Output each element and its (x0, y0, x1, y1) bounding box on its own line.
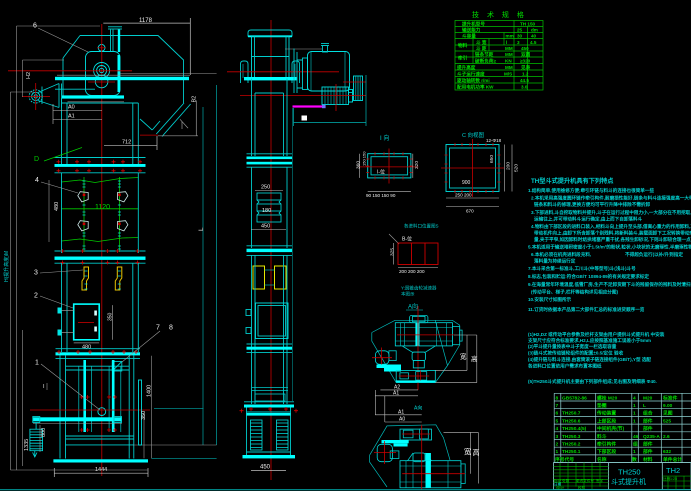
svg-text:斗式提升机: 斗式提升机 (611, 477, 646, 486)
svg-text:TH250.7: TH250.7 (562, 411, 581, 417)
svg-text:2.本机采用高强度圆环链作牵引构件,耐磨损性能好,链条与料斗: 2.本机采用高强度圆环链作牵引构件,耐磨损性能好,链条与料斗连接强度高一大带动并… (531, 195, 691, 202)
svg-text:1: 1 (633, 449, 636, 455)
svg-text:3: 3 (34, 270, 38, 277)
svg-text:6: 6 (33, 23, 37, 30)
svg-text:校核: 校核 (578, 485, 586, 490)
svg-text:TH 150: TH 150 (520, 21, 536, 26)
svg-text:320: 320 (414, 161, 420, 169)
svg-text:250 200: 250 200 (455, 193, 472, 198)
svg-text:技 术 规 格: 技 术 规 格 (472, 10, 527, 19)
svg-text:运输往上,并可带动料斗运行确定,由上而下自卸落料斗: 运输往上,并可带动料斗运行确定,由上而下自卸落料斗 (534, 216, 643, 223)
svg-text:1:25: 1:25 (670, 477, 677, 481)
svg-text:各进料口位置图S: 各进料口位置图S (404, 223, 439, 230)
svg-text:670: 670 (466, 209, 474, 214)
svg-text:1120: 1120 (95, 204, 110, 211)
svg-text:驱动轴转数 r/mi: 驱动轴转数 r/mi (457, 77, 490, 84)
svg-text:1335: 1335 (24, 439, 30, 451)
svg-text:物料: 物料 (458, 42, 468, 49)
svg-text:(1)H2,DZ 或传动平台参数及栏杆支架由用户提供斗式提升: (1)H2,DZ 或传动平台参数及栏杆支架由用户提供斗式提升机 中安装 (528, 331, 665, 338)
svg-text:450: 450 (260, 465, 271, 471)
svg-text:1.2: 1.2 (522, 72, 529, 77)
svg-text:325: 325 (390, 248, 396, 256)
svg-text:链条节距: 链条节距 (474, 51, 494, 58)
svg-text:4.物料由下部区段的进料口装入,经料斗向上提升至头部,借离心: 4.物料由下部区段的进料口装入,经料斗向上提升至头部,借离心重力的作用卸料,工况… (531, 223, 691, 230)
svg-text:5.本机适用于输送堆积密度小于1.5t/m³的粉状,粒状,小: 5.本机适用于输送堆积密度小于1.5t/m³的粉状,粒状,小块状的无磨琢性,半磨… (528, 244, 691, 251)
svg-text:525: 525 (663, 418, 671, 424)
svg-text:M/S: M/S (504, 72, 512, 77)
svg-text:下部区段: 下部区段 (597, 448, 616, 455)
svg-text:(2)平斗提升量按表中斗子宽度一栏选取容量: (2)平斗提升量按表中斗子宽度一栏选取容量 (528, 343, 617, 350)
svg-text:MM: MM (505, 52, 513, 57)
svg-text:(4)提升链与料斗连接,由套筒滚子链连接组件(GB/T),Y: (4)提升链与料斗连接,由套筒滚子链连接组件(GB/T),Y型 选配 (528, 356, 651, 363)
svg-text:800: 800 (41, 428, 47, 437)
svg-text:组合: 组合 (643, 410, 653, 417)
svg-text:1178: 1178 (139, 18, 153, 24)
svg-text:5: 5 (556, 418, 559, 424)
svg-text:料斗: 料斗 (597, 433, 607, 440)
svg-text:牵引: 牵引 (458, 55, 468, 62)
svg-text:落料量为持续运行定: 落料量为持续运行定 (534, 258, 576, 265)
svg-text:2: 2 (34, 293, 38, 300)
svg-text:垫圈: 垫圈 (597, 402, 607, 409)
svg-text:3: 3 (556, 434, 559, 440)
svg-text:A2: A2 (394, 384, 400, 390)
svg-text:(5)TH250斗式提升机主要由下列部件组成;见右图及明细表: (5)TH250斗式提升机主要由下列部件组成;见右图及明细表 Φ40. (528, 378, 657, 385)
svg-text:MM: MM (505, 46, 513, 51)
svg-text:712: 712 (122, 140, 131, 146)
svg-text:480: 480 (82, 345, 91, 351)
svg-text:斗子运行速度: 斗子运行速度 (457, 71, 485, 78)
svg-text:2: 2 (556, 442, 559, 448)
svg-text:4: 4 (633, 395, 636, 401)
svg-text:6: 6 (556, 411, 559, 417)
svg-text:牵引构件: 牵引构件 (597, 441, 616, 448)
svg-text:450: 450 (261, 224, 270, 230)
svg-text:30: 30 (517, 33, 523, 38)
svg-text:MM: MM (505, 65, 513, 70)
svg-text:TH250.3: TH250.3 (562, 434, 581, 440)
svg-text:上部区段: 上部区段 (597, 417, 616, 424)
svg-text:(传动平台、梯子,栏杆等结构详见相应分图): (传动平台、梯子,栏杆等结构详见相应分图) (531, 289, 618, 296)
svg-text:480: 480 (54, 202, 60, 211)
svg-text:12-Φ18: 12-Φ18 (486, 138, 502, 143)
svg-text:3.0: 3.0 (521, 85, 528, 90)
svg-text:GB5782-86: GB5782-86 (562, 395, 587, 401)
svg-text:名称: 名称 (597, 456, 607, 463)
svg-text:带动机件向上,由卸下所含卸落个别残料,将新料装斗,装载面卸下: 带动机件向上,由卸下所含卸落个别残料,将新料装斗,装载面卸下工况转换带动升运 (534, 230, 691, 237)
svg-text:TH250.6: TH250.6 (562, 418, 581, 424)
svg-text:斗 宽: 斗 宽 (476, 39, 487, 46)
svg-text:A1: A1 (68, 114, 75, 120)
svg-text:数: 数 (632, 456, 637, 463)
svg-text:链条和料斗的修理,更换方便均可平行升降中排除不需折卸: 链条和料斗的修理,更换方便均可平行升降中排除不需折卸 (533, 201, 651, 208)
svg-text:A0: A0 (399, 417, 405, 423)
svg-text:10.安装尺寸如图所示: 10.安装尺寸如图所示 (528, 296, 572, 303)
svg-text:A向: A向 (408, 303, 418, 311)
svg-text:1: 1 (633, 411, 636, 417)
svg-text:11.订货时依据本产品第二大部件汇总的标准进货顺序一览: 11.订货时依据本产品第二大部件汇总的标准进货顺序一览 (528, 306, 645, 313)
svg-text:4: 4 (556, 426, 559, 432)
svg-text:日期: 日期 (554, 481, 562, 486)
svg-text:A0: A0 (68, 105, 75, 111)
svg-text:7: 7 (556, 403, 559, 409)
svg-text:B2: B2 (192, 96, 198, 103)
svg-text:8.标志,包装和贮运:符合GB/T 10894-89的有关规: 8.标志,包装和贮运:符合GB/T 10894-89的有关规定要求标定 (528, 273, 649, 280)
svg-text:dm: dm (531, 27, 538, 32)
svg-text:高: 高 (473, 448, 480, 457)
svg-text:9.00: 9.00 (663, 403, 673, 409)
svg-text:8: 8 (169, 325, 173, 332)
svg-text:4.5: 4.5 (530, 40, 537, 45)
svg-text:Q235-A: Q235-A (643, 434, 660, 440)
svg-text:I-位: I-位 (377, 169, 385, 176)
svg-text:不得超负运行(以补/升到指定: 不得超负运行(以补/升到指定 (625, 251, 683, 258)
svg-text:TH250.2: TH250.2 (562, 442, 581, 448)
svg-text:螺栓 M20: 螺栓 M20 (597, 394, 618, 401)
svg-text:部件: 部件 (643, 441, 653, 448)
svg-text:632: 632 (663, 449, 671, 455)
svg-text:KN: KN (505, 59, 512, 64)
svg-text:A1: A1 (393, 391, 399, 397)
svg-text:更改文件号: 更改文件号 (576, 478, 594, 483)
svg-text:1: 1 (556, 449, 559, 455)
svg-text:B-位: B-位 (402, 236, 412, 243)
svg-text:H2: H2 (26, 72, 32, 79)
svg-text:mm: mm (506, 33, 514, 38)
svg-text:9.在海量常年环境温度,低雪厂房,生产不足卸货期下斗的残留保: 9.在海量常年环境温度,低雪厂房,生产不足卸货期下斗的残留保存的残料及时清扫干净… (528, 281, 691, 288)
svg-text:1: 1 (633, 403, 636, 409)
svg-text:(3)链斗式按传动链轮组件的配置±0.5/定位 验收: (3)链斗式按传动链轮组件的配置±0.5/定位 验收 (528, 350, 624, 357)
svg-text:见表: 见表 (520, 64, 531, 71)
svg-text:配用电机功率 KW: 配用电机功率 KW (457, 84, 494, 91)
svg-text:≥320: ≥320 (520, 59, 531, 64)
svg-text:传动装置: 传动装置 (596, 410, 616, 417)
svg-text:4: 4 (35, 177, 39, 184)
svg-text:90 150 150 90: 90 150 150 90 (366, 193, 396, 198)
svg-text:支架尺寸应符合标准要求,H2,L应按照基准施工误差小于5mm: 支架尺寸应符合标准要求,H2,L应按照基准施工误差小于5mm (528, 337, 651, 344)
svg-text:1.结构简单,使用维修方便;牵引环链与料斗的连接也很简单一些: 1.结构简单,使用维修方便;牵引环链与料斗的连接也很简单一些 (528, 187, 654, 194)
svg-text:宽: 宽 (464, 447, 471, 456)
svg-text:Y:圆锥齿轮减速器: Y:圆锥齿轮减速器 (401, 285, 437, 292)
svg-text:TH型斗式提升机具有下列特点: TH型斗式提升机具有下列特点 (531, 177, 614, 185)
svg-text:D: D (34, 156, 39, 163)
svg-text:高: 高 (471, 354, 478, 363)
svg-text:46: 46 (633, 434, 639, 440)
svg-text:宽: 宽 (460, 352, 467, 361)
svg-text:C 向视图: C 向视图 (462, 131, 485, 139)
svg-text:7.本斗采合第一标准斗,工川斗(中等型号)斗(浅斗)斗号: 7.本斗采合第一标准斗,工川斗(中等型号)斗(浅斗)斗号 (528, 265, 636, 272)
svg-text:斗容量: 斗容量 (462, 32, 476, 39)
svg-text:TH250.1: TH250.1 (562, 449, 581, 455)
svg-text:A1: A1 (398, 409, 404, 415)
svg-text:双圆: 双圆 (521, 51, 531, 58)
svg-text:I 向: I 向 (380, 134, 389, 142)
svg-text:序号代号: 序号代号 (555, 456, 574, 463)
svg-text:组: 组 (633, 441, 638, 448)
svg-text:部件: 部件 (643, 448, 653, 455)
svg-text:44.5: 44.5 (520, 78, 529, 83)
svg-text:8: 8 (556, 395, 559, 401)
svg-text:900: 900 (462, 180, 471, 186)
svg-text:提升机型号: 提升机型号 (462, 20, 485, 27)
svg-text:l: l (506, 40, 507, 45)
svg-text:520: 520 (514, 164, 520, 172)
svg-text:1400: 1400 (147, 385, 153, 397)
svg-text:200 200 200: 200 200 200 (399, 269, 425, 274)
svg-text:A向: A向 (414, 405, 422, 412)
svg-text:150 150: 150 150 (362, 151, 367, 166)
svg-text:量,夹于平窄,如因卸料时结拱堵塞严重干扰,各残生卸砂况,下则: 量,夹于平窄,如因卸料时结拱堵塞严重干扰,各残生卸砂况,下则斗卸较合理一点 (534, 236, 691, 243)
svg-text:350: 350 (141, 411, 147, 420)
svg-text:各进料口位置依用户需求布置本图纸: 各进料口位置依用户需求布置本图纸 (527, 363, 602, 370)
svg-text:部件: 部件 (643, 425, 653, 432)
svg-text:部件: 部件 (643, 417, 653, 424)
svg-text:见图: 见图 (663, 410, 673, 417)
svg-text:L: L (198, 227, 205, 231)
svg-text:M20: M20 (643, 395, 653, 401)
svg-text:3: 3 (517, 40, 520, 45)
svg-text:650: 650 (489, 155, 495, 163)
svg-text:7: 7 (156, 325, 160, 332)
svg-text:TH2: TH2 (666, 466, 680, 475)
svg-text:200: 200 (506, 162, 512, 170)
svg-text:25: 25 (517, 27, 523, 32)
svg-text:40: 40 (531, 33, 537, 38)
svg-text:250: 250 (261, 185, 270, 191)
svg-text:L: L (643, 403, 646, 409)
svg-text:标准件: 标准件 (662, 394, 678, 401)
svg-text:H(提升高度)M: H(提升高度)M (3, 251, 10, 282)
svg-text:提升高度: 提升高度 (457, 64, 476, 71)
svg-text:TH250: TH250 (618, 468, 641, 477)
svg-text:6.本机必须在机壳进料段充料,: 6.本机必须在机壳进料段充料, (531, 251, 591, 258)
svg-text:材料: 材料 (642, 456, 653, 463)
svg-text:180: 180 (262, 208, 271, 214)
svg-text:TH250.4(5): TH250.4(5) (562, 426, 587, 432)
svg-text:1: 1 (633, 418, 636, 424)
svg-text:斗 距: 斗 距 (476, 45, 487, 52)
svg-text:2.6: 2.6 (663, 434, 670, 440)
svg-text:中间机壳(节): 中间机壳(节) (597, 425, 625, 432)
svg-text:350: 350 (108, 312, 114, 321)
svg-text:450: 450 (521, 46, 529, 51)
svg-text:签字: 签字 (596, 478, 604, 483)
svg-text:破断负荷≥: 破断负荷≥ (475, 58, 496, 65)
svg-text:输送能力: 输送能力 (462, 26, 481, 33)
svg-text:本图示: 本图示 (401, 291, 415, 298)
svg-text:单件总计: 单件总计 (663, 456, 682, 463)
svg-text:3.下部进料,斗自挖取物料并提升,斗子在运行过程中阻力小,一: 3.下部进料,斗自挖取物料并提升,斗子在运行过程中阻力小,一大部分在不用挖取,方… (531, 209, 691, 216)
svg-text:1: 1 (35, 360, 39, 367)
